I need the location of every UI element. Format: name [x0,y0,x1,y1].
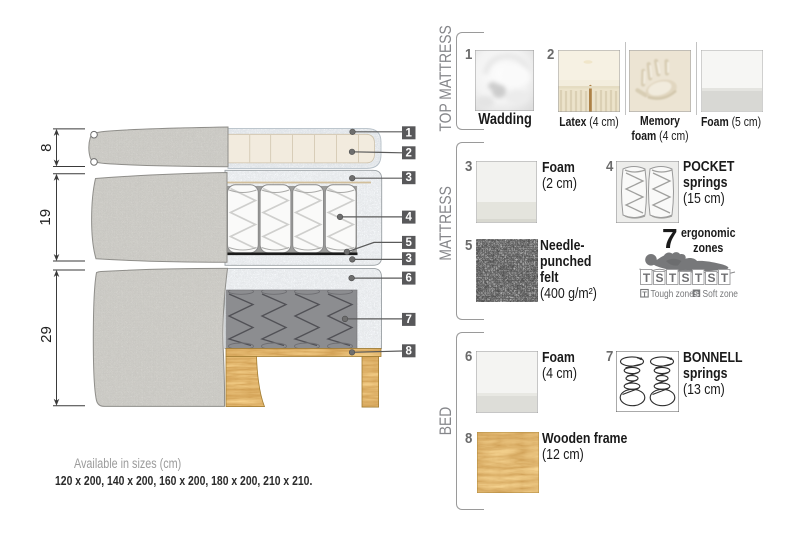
svg-text:S: S [681,271,689,285]
svg-text:7: 7 [405,314,411,326]
svg-text:Soft zone: Soft zone [703,288,738,299]
svg-text:1: 1 [405,127,412,139]
svg-text:S: S [694,289,699,298]
svg-text:4: 4 [405,212,412,224]
svg-text:T: T [643,271,651,285]
svg-text:8: 8 [38,144,55,152]
svg-text:T: T [642,289,647,298]
svg-text:3: 3 [405,172,411,184]
svg-text:T: T [669,271,677,285]
svg-text:19: 19 [37,209,54,226]
svg-text:6: 6 [405,273,411,285]
svg-text:8: 8 [405,345,412,357]
svg-text:29: 29 [38,326,55,343]
svg-text:2: 2 [405,147,411,159]
svg-text:3: 3 [405,253,411,265]
svg-text:Tough zone: Tough zone [651,288,694,299]
svg-text:S: S [655,271,663,285]
svg-text:T: T [721,271,729,285]
svg-text:S: S [707,271,715,285]
svg-text:T: T [695,271,703,285]
svg-text:5: 5 [405,237,412,249]
